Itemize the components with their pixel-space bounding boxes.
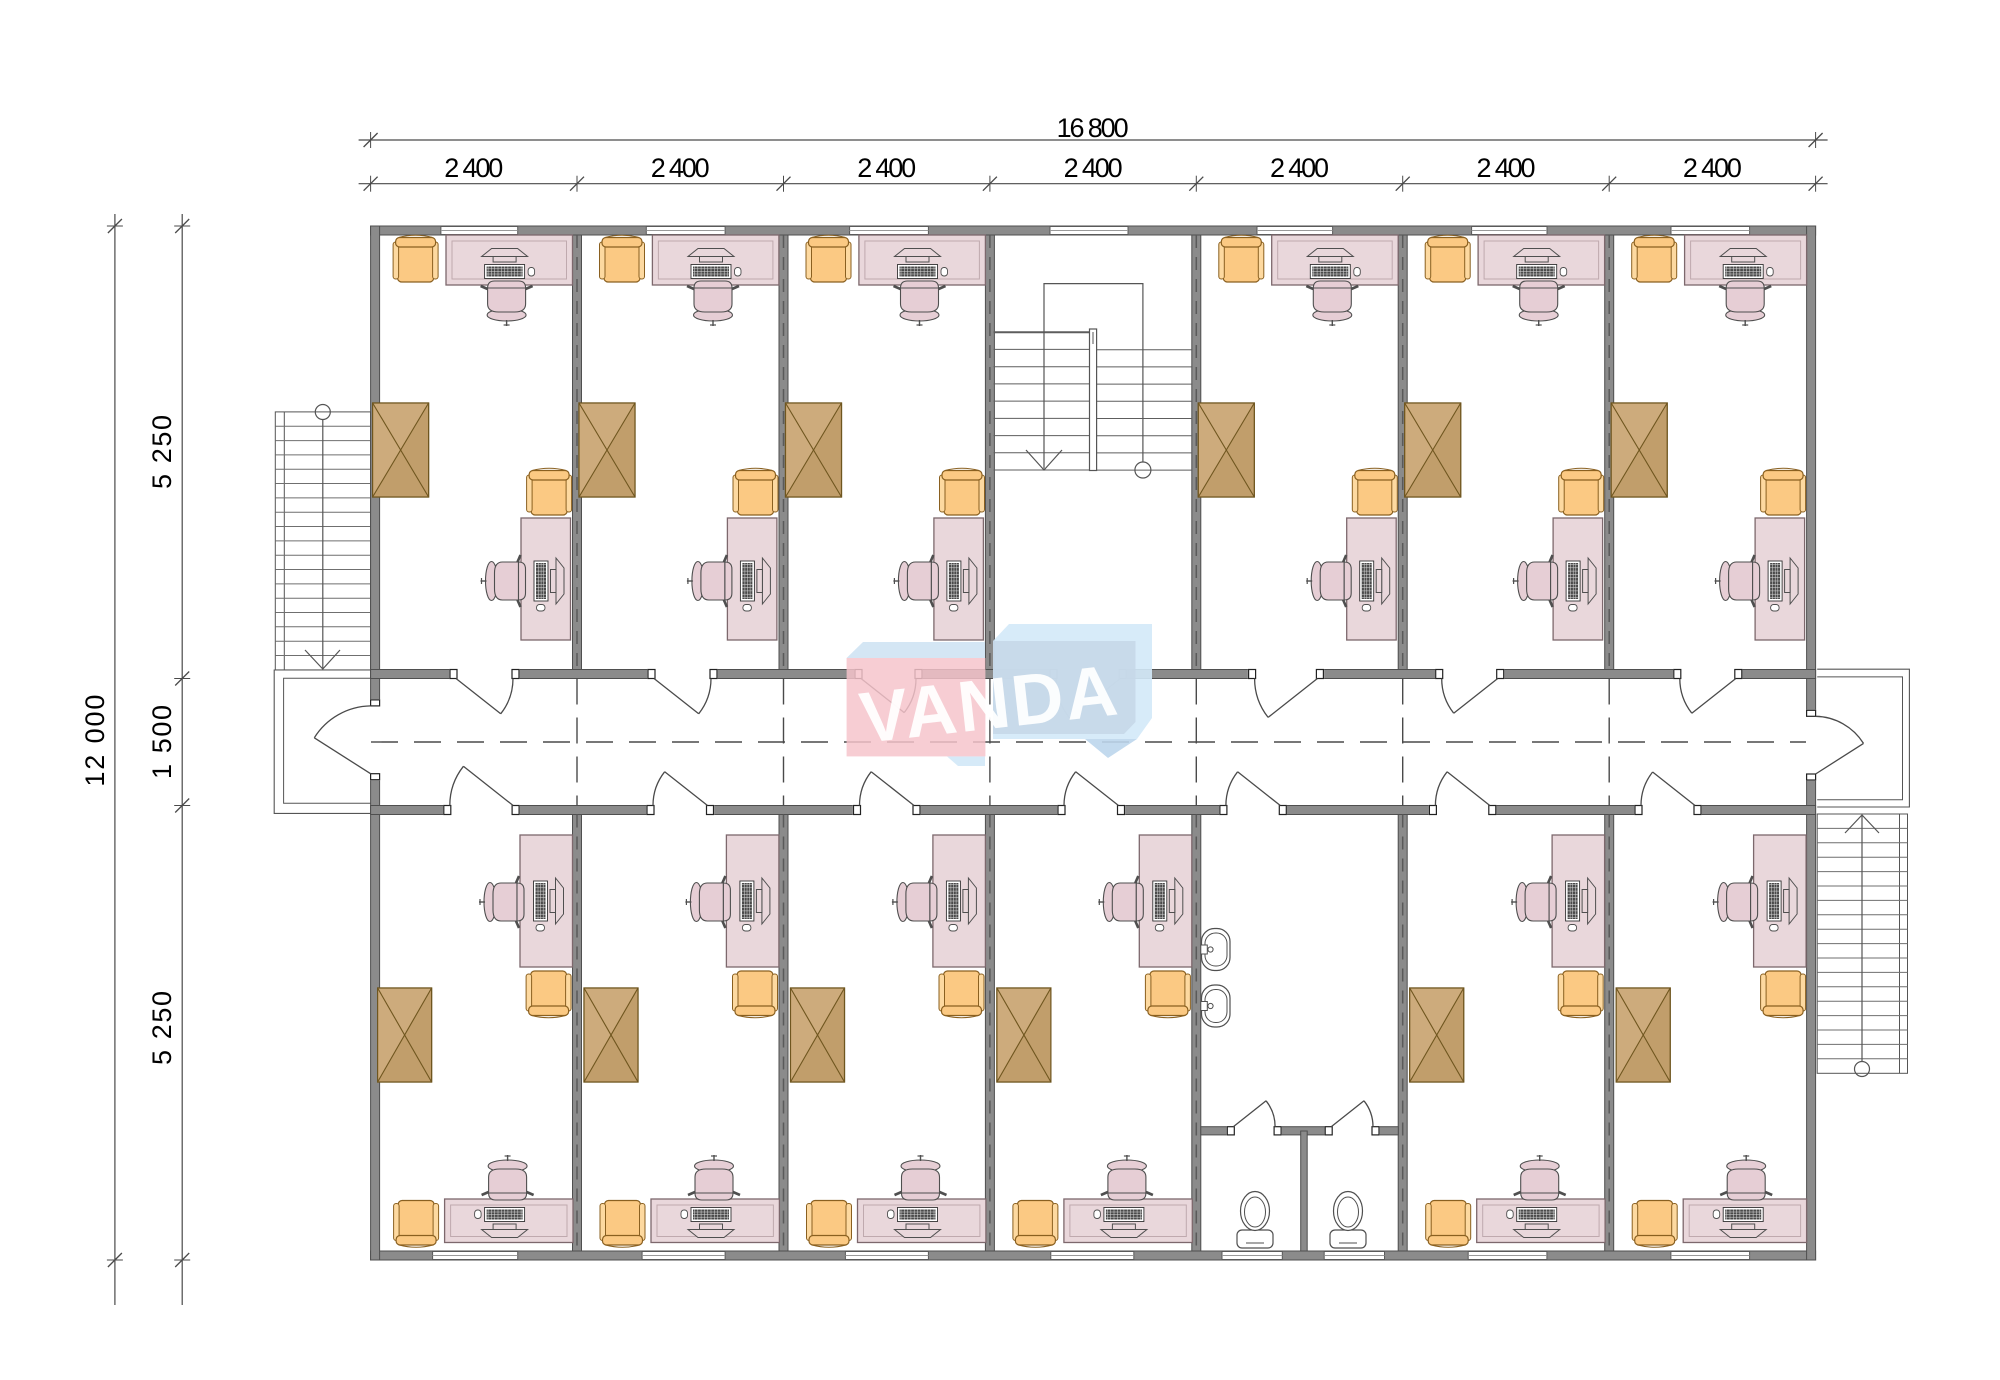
svg-text:2 400: 2 400 — [1270, 153, 1329, 183]
svg-text:5 250: 5 250 — [147, 415, 177, 489]
svg-text:12 000: 12 000 — [80, 695, 110, 787]
svg-text:2 400: 2 400 — [1064, 153, 1123, 183]
svg-text:2 400: 2 400 — [1477, 153, 1536, 183]
svg-text:2 400: 2 400 — [444, 153, 503, 183]
svg-text:16 800: 16 800 — [1057, 113, 1129, 143]
svg-text:2 400: 2 400 — [857, 153, 916, 183]
svg-text:2 400: 2 400 — [1683, 153, 1742, 183]
svg-text:5 250: 5 250 — [147, 991, 177, 1065]
svg-text:1 500: 1 500 — [147, 705, 177, 779]
svg-text:2 400: 2 400 — [651, 153, 710, 183]
